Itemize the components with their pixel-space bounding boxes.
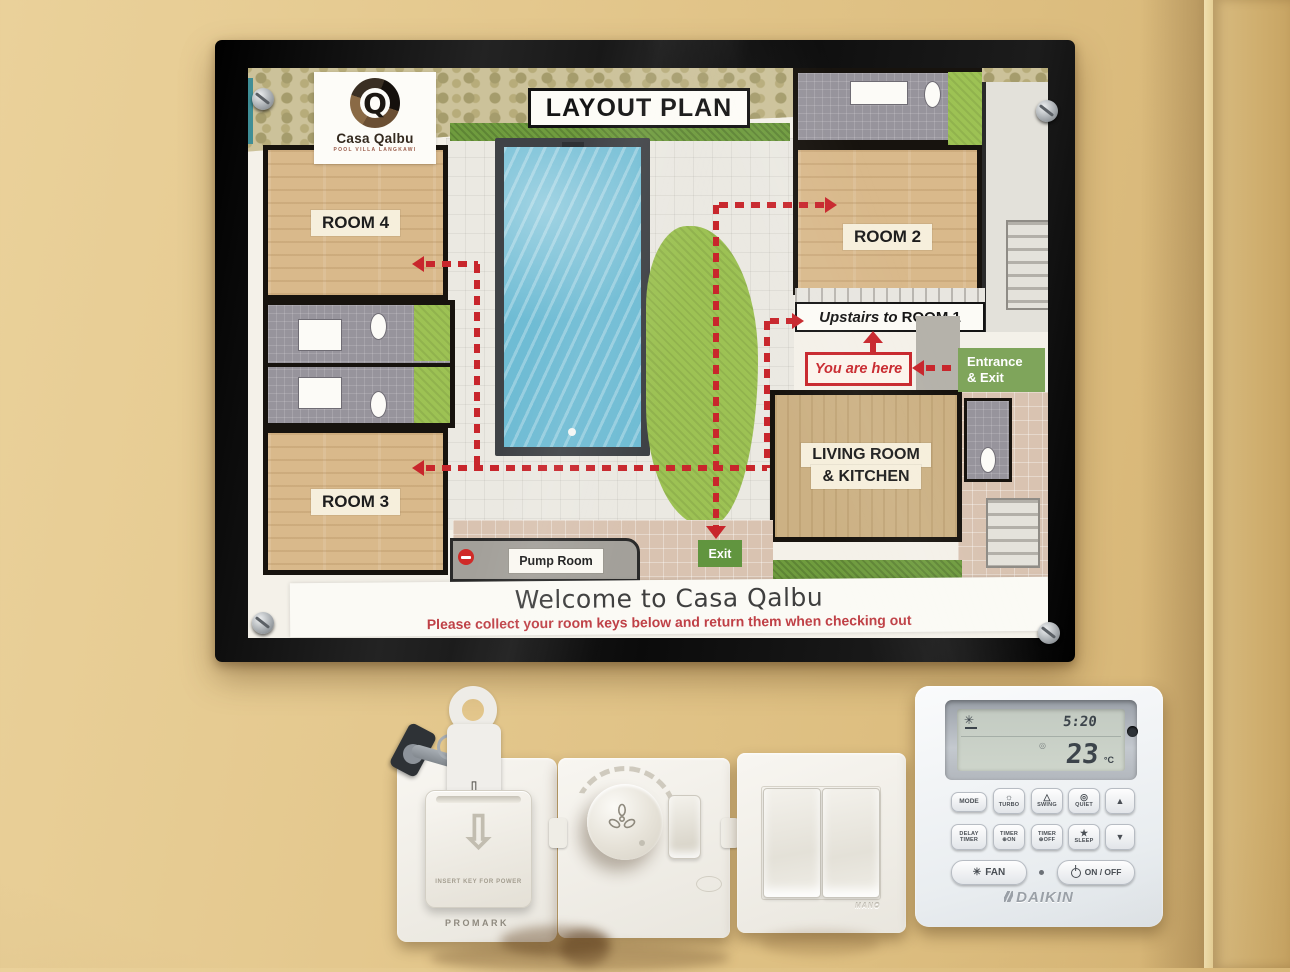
- turbo-button: ☼TURBO: [993, 788, 1025, 814]
- knob-pointer-dot: [639, 840, 645, 846]
- screw-top-left: [252, 88, 274, 110]
- toilet-4: [980, 447, 996, 473]
- bath-divider-wall: [268, 363, 450, 367]
- right-corridor: [982, 82, 1048, 332]
- screw-bottom-left: [252, 612, 274, 634]
- stairs-up: [1006, 220, 1048, 310]
- keycard-slot: [436, 796, 521, 803]
- route-trunk-center: [713, 205, 719, 526]
- fan-dimmer-switch: [558, 758, 730, 938]
- turbo-label: TURBO: [999, 802, 1020, 808]
- logo-tagline: POOL VILLA LANGKAWI: [333, 147, 416, 153]
- bathrooms-left: [263, 300, 455, 428]
- quiet-label: QUIET: [1075, 802, 1093, 808]
- bathroom-entrance: [964, 398, 1012, 482]
- entrance-line1: Entrance: [967, 354, 1045, 370]
- entrance-exit-box: Entrance & Exit: [958, 348, 1045, 392]
- temp-up-button: ▲: [1105, 788, 1135, 814]
- floor-plan: ROOM 4 ROOM 3 ROOM 2 Upstairs: [248, 68, 1048, 638]
- lcd-temperature-unit: °C: [1104, 755, 1114, 765]
- living-room: LIVING ROOM & KITCHEN: [770, 390, 962, 542]
- toilet-2: [370, 391, 387, 418]
- thermostat-lcd: ✳ ◎ 5:20 23 °C: [957, 709, 1125, 771]
- fan-button-label: FAN: [985, 867, 1005, 878]
- power-icon: [1071, 868, 1081, 878]
- lcd-time: 5:20: [1062, 714, 1097, 730]
- route-arrow-exit-icon: [706, 526, 726, 539]
- pool-ladder: [562, 142, 584, 147]
- sleep-icon: ★: [1080, 829, 1088, 838]
- fan-button-icon: ✳: [973, 867, 981, 878]
- thermostat-led-dot: [1039, 870, 1044, 875]
- logo-name: Casa Qalbu: [336, 131, 413, 146]
- timer-off-button: TIMER⊕OFF: [1031, 824, 1063, 850]
- timer-off-label-2: ⊕OFF: [1039, 837, 1055, 843]
- lcd-mode-icon: ◎: [1039, 741, 1046, 750]
- screw-bottom-right: [1038, 622, 1060, 644]
- up-arrow-icon: ▲: [1116, 797, 1125, 806]
- logo-card: Q Casa Qalbu POOL VILLA LANGKAWI: [314, 72, 436, 164]
- dimmer-rocker-switch: [668, 795, 701, 859]
- power-button: ON / OFF: [1057, 860, 1135, 885]
- route-arrow-room2-icon: [825, 197, 837, 213]
- quiet-button: ◎QUIET: [1068, 788, 1100, 814]
- welcome-text: Welcome to Casa Qalbu: [515, 583, 824, 615]
- living-label-2: & KITCHEN: [811, 465, 920, 489]
- toilet-3: [924, 81, 941, 108]
- lcd-divider: [961, 736, 1121, 737]
- wall-corner-highlight: [1204, 0, 1213, 968]
- route-arrow-entrance-icon: [912, 360, 924, 376]
- fan-button: ✳FAN: [951, 860, 1027, 885]
- bath-entry-green-1: [414, 305, 450, 361]
- vanity-2: [298, 377, 342, 409]
- toilet-1: [370, 313, 387, 340]
- casa-qalbu-logo-icon: Q: [350, 78, 400, 128]
- entrance-corridor: [916, 316, 960, 400]
- keycard-pocket: ⇩ INSERT KEY FOR POWER: [425, 790, 532, 908]
- daikin-logo-stripe-icon: [1004, 891, 1013, 902]
- welcome-strip: Welcome to Casa Qalbu Please collect you…: [290, 577, 1048, 638]
- room-2: ROOM 2: [793, 145, 982, 295]
- keycard-instruction: INSERT KEY FOR POWER: [426, 879, 531, 885]
- dimmer-left-tab: [549, 818, 567, 848]
- swing-button: △SWING: [1031, 788, 1063, 814]
- vanity-1: [298, 319, 342, 351]
- room-4-label: ROOM 4: [311, 210, 400, 236]
- route-upstairs: [770, 318, 792, 324]
- dimmer-logo-emblem: [696, 876, 722, 892]
- wall-right-face: [1213, 0, 1290, 968]
- daikin-logo: DAIKIN: [915, 889, 1163, 906]
- room-2-label: ROOM 2: [843, 224, 932, 250]
- screw-top-right: [1036, 100, 1058, 122]
- route-arrow-room3-icon: [412, 460, 424, 476]
- light-switch-panel: MANO: [737, 753, 906, 933]
- timer-on-button: TIMER⊕ON: [993, 824, 1025, 850]
- exit-box: Exit: [698, 540, 742, 567]
- pool: [495, 138, 650, 456]
- mode-button: MODE: [951, 792, 987, 812]
- timer-on-label-2: ⊕ON: [1002, 837, 1015, 843]
- sleep-button: ★SLEEP: [1068, 824, 1100, 850]
- swing-icon: △: [1044, 793, 1051, 802]
- you-are-here-box: You are here: [805, 352, 912, 386]
- pool-light: [568, 428, 576, 436]
- you-are-here-text: You are here: [815, 361, 902, 377]
- welcome-note: Please collect your room keys below and …: [427, 612, 912, 632]
- sleep-label: SLEEP: [1074, 838, 1093, 844]
- power-button-label: ON / OFF: [1085, 868, 1122, 877]
- lawn: [646, 226, 758, 526]
- entrance-line2: & Exit: [967, 370, 1045, 386]
- living-label-1: LIVING ROOM: [801, 443, 931, 467]
- route-arrow-room4-icon: [412, 256, 424, 272]
- fan-speed-knob: [587, 784, 663, 860]
- thermostat-sensor-led: [1127, 726, 1138, 737]
- thermostat-display-bezel: ✳ ◎ 5:20 23 °C: [945, 700, 1137, 780]
- delay-timer-button: DELAYTIMER: [951, 824, 987, 850]
- route-trunk-living: [764, 321, 770, 468]
- stairs-entrance: [986, 498, 1040, 568]
- timer-on-text: ON: [1007, 837, 1016, 843]
- logo-monogram: Q: [350, 78, 400, 128]
- upstairs-hatch: [795, 288, 985, 302]
- acrylic-edge: [248, 78, 253, 144]
- light-rocker-right: [822, 788, 880, 898]
- plan-title-text: LAYOUT PLAN: [546, 94, 732, 123]
- you-are-here-arrow-icon: [863, 331, 883, 343]
- bath-entry-green-2: [414, 367, 450, 423]
- room-4: ROOM 4: [263, 145, 448, 300]
- light-switch-brand: MANO: [855, 903, 880, 910]
- route-room2: [719, 202, 825, 208]
- green-patch-bath: [948, 72, 982, 145]
- upstairs-prefix: Upstairs to: [819, 309, 897, 326]
- exit-text: Exit: [709, 547, 732, 561]
- room-3-label: ROOM 3: [311, 489, 400, 515]
- delay-label-2: TIMER: [960, 837, 978, 843]
- vanity-3: [850, 81, 908, 105]
- down-arrow-icon: ▼: [1116, 833, 1125, 842]
- quiet-icon: ◎: [1080, 793, 1088, 802]
- fan-blade-icon: [605, 802, 639, 836]
- pool-water: [504, 147, 641, 447]
- room-3: ROOM 3: [263, 428, 448, 575]
- daikin-logo-text: DAIKIN: [1016, 889, 1074, 906]
- layout-plan-sign: ROOM 4 ROOM 3 ROOM 2 Upstairs: [215, 40, 1075, 662]
- timer-off-text: OFF: [1044, 837, 1056, 843]
- plan-title: LAYOUT PLAN: [528, 88, 750, 128]
- pump-room-text: Pump Room: [519, 554, 593, 568]
- lcd-temperature: 23: [1065, 739, 1101, 770]
- swing-label: SWING: [1037, 802, 1057, 808]
- wall-stain-4: [760, 930, 880, 956]
- route-arrow-upstairs-icon: [792, 313, 804, 329]
- light-rocker-left: [763, 788, 821, 898]
- temp-down-button: ▼: [1105, 824, 1135, 850]
- you-are-here-arrow-stem: [870, 342, 876, 352]
- pocket-arrow-icon: ⇩: [426, 809, 531, 855]
- route-entrance: [926, 365, 958, 371]
- turbo-icon: ☼: [1005, 793, 1013, 802]
- route-room4: [426, 261, 478, 267]
- no-entry-icon: [458, 549, 474, 565]
- keycard-power-switch: ⇩ ⇩ INSERT KEY FOR POWER PROMARK: [397, 758, 557, 942]
- daikin-thermostat: ✳ ◎ 5:20 23 °C MODE ☼TURBO △SWING ◎QUIET…: [915, 686, 1163, 927]
- lcd-fan-icon: ✳: [964, 713, 974, 727]
- route-trunk-left: [474, 264, 480, 468]
- pump-room-label: Pump Room: [508, 548, 604, 574]
- mode-label: MODE: [959, 798, 979, 805]
